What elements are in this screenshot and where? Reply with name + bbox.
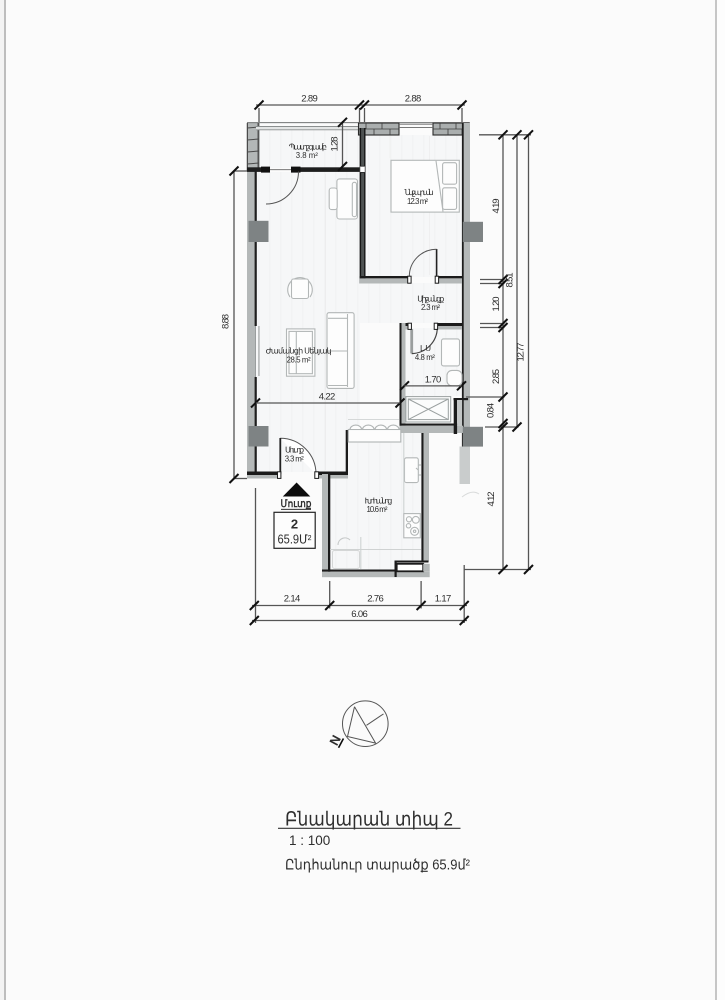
svg-text:4.8 m²: 4.8 m² [415,353,435,362]
svg-text:Ժամանցի Սենյակ: Ժամանցի Սենյակ [266,346,332,355]
svg-text:1.28: 1.28 [330,137,341,152]
svg-text:2: 2 [291,517,298,532]
svg-text:12.3 m²: 12.3 m² [407,197,428,206]
svg-text:Ննջարան: Ննջարան [405,188,434,197]
svg-text:28.5 m²: 28.5 m² [287,356,311,365]
svg-text:2.14: 2.14 [284,594,301,605]
svg-text:3.3 m²: 3.3 m² [285,454,304,463]
svg-text:Մուտք: Մուտք [285,446,304,455]
svg-text:Ընդհանուր տարածք 65.9մ²: Ընդհանուր տարածք 65.9մ² [285,858,470,874]
svg-text:2.89: 2.89 [301,94,318,105]
svg-text:Բնակարան տիպ 2: Բնակարան տիպ 2 [285,809,453,831]
svg-text:12.77: 12.77 [516,343,527,362]
svg-text:10.6 m²: 10.6 m² [367,505,388,514]
svg-text:2.3 m²: 2.3 m² [421,303,440,312]
svg-text:4.19: 4.19 [491,199,502,214]
svg-text:4.22: 4.22 [319,392,336,403]
svg-text:1 : 100: 1 : 100 [289,833,330,848]
svg-text:2.88: 2.88 [405,94,422,105]
svg-text:ԼՍ: ԼՍ [420,344,431,353]
svg-text:1.70: 1.70 [425,374,442,385]
svg-text:2.85: 2.85 [491,369,502,384]
svg-text:6.06: 6.06 [351,609,368,620]
svg-text:1.17: 1.17 [435,594,452,605]
svg-text:8.51: 8.51 [505,273,516,288]
svg-text:3.8 m²: 3.8 m² [296,151,318,160]
svg-text:2.76: 2.76 [367,594,384,605]
svg-text:0.84: 0.84 [486,403,497,418]
svg-text:Մուտք: Մուտք [281,498,312,510]
svg-text:65.9Մ²: 65.9Մ² [278,533,312,547]
svg-text:1.20: 1.20 [491,297,502,312]
svg-text:8.88: 8.88 [221,314,232,329]
svg-text:4.12: 4.12 [486,492,497,507]
